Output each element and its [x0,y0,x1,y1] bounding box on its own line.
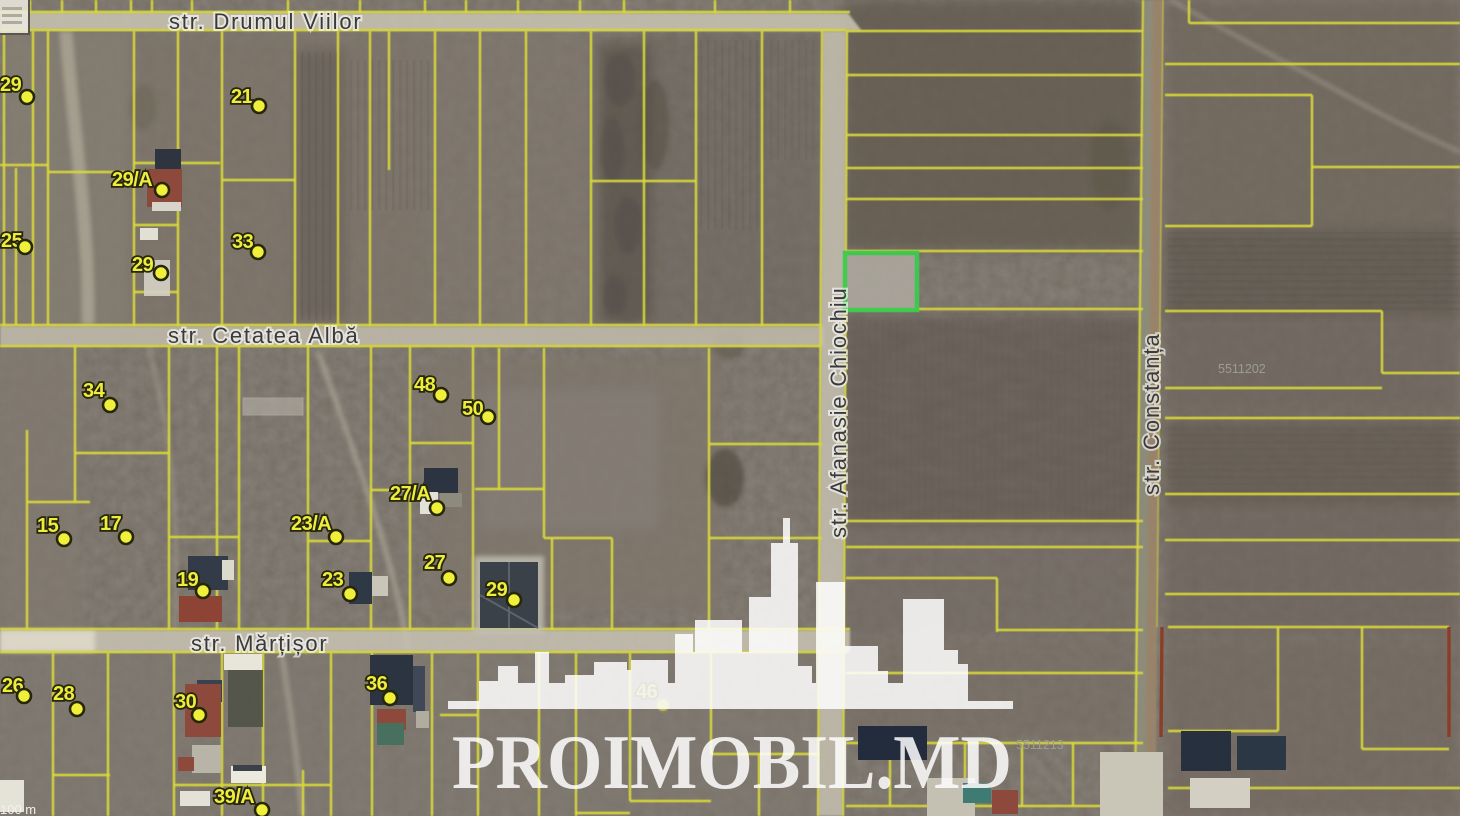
svg-text:23: 23 [322,569,344,591]
svg-text:PROIMOBIL.MD: PROIMOBIL.MD [452,719,1012,805]
svg-text:19: 19 [177,569,199,591]
svg-text:21: 21 [231,86,253,108]
svg-text:15: 15 [37,515,59,537]
svg-text:17: 17 [100,513,122,535]
svg-text:23/A: 23/A [291,513,331,535]
svg-text:str. Mărțișor: str. Mărțișor [191,631,327,656]
svg-text:36: 36 [366,673,388,695]
svg-text:str. Drumul Viilor: str. Drumul Viilor [169,9,361,34]
svg-text:str. Constanța: str. Constanța [1139,334,1164,495]
svg-text:48: 48 [414,374,436,396]
svg-text:34: 34 [83,380,106,402]
svg-text:27/A: 27/A [390,483,430,505]
svg-text:29: 29 [486,579,508,601]
svg-text:5511202: 5511202 [1218,362,1266,376]
svg-text:29: 29 [132,254,154,276]
svg-text:28: 28 [53,683,75,705]
svg-text:str. Cetatea Albă: str. Cetatea Albă [168,323,358,348]
svg-text:29/A: 29/A [112,169,152,191]
svg-text:27: 27 [424,552,446,574]
svg-text:5511213: 5511213 [1016,738,1064,752]
svg-text:100 m: 100 m [0,802,36,816]
svg-text:str. Afanasie Chiochiu: str. Afanasie Chiochiu [826,288,851,538]
svg-text:29: 29 [0,74,22,96]
svg-text:5511201: 5511201 [247,400,295,414]
svg-text:39/A: 39/A [214,786,254,808]
